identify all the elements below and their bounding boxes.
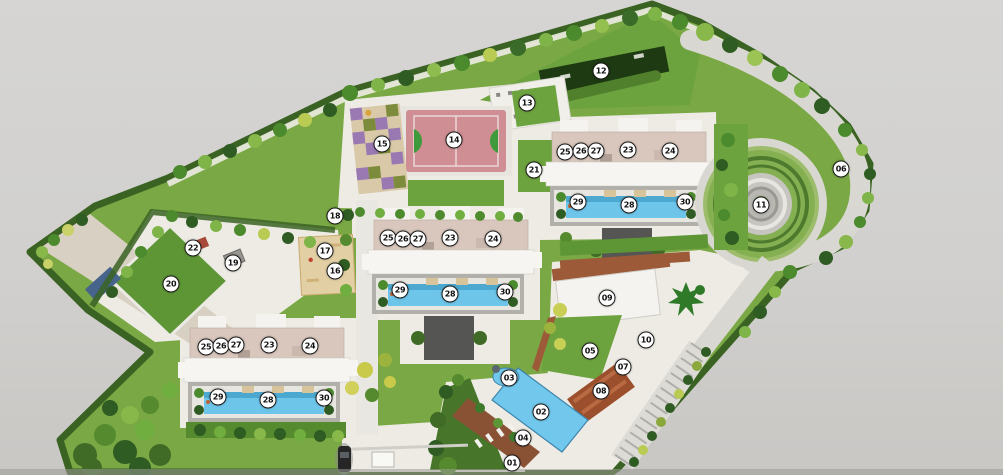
marker-05: 05: [582, 343, 599, 360]
site-plan-canvas: 0102030405060708091011121314151617181920…: [0, 0, 1003, 475]
marker-03: 03: [501, 370, 518, 387]
marker-27: 27: [410, 231, 427, 248]
marker-24: 24: [662, 143, 679, 160]
marker-15: 15: [374, 136, 391, 153]
marker-01: 01: [504, 455, 521, 472]
marker-04: 04: [515, 430, 532, 447]
marker-18: 18: [327, 208, 344, 225]
marker-06: 06: [833, 161, 850, 178]
marker-08: 08: [593, 383, 610, 400]
marker-22: 22: [185, 240, 202, 257]
marker-30: 30: [316, 390, 333, 407]
marker-24: 24: [302, 338, 319, 355]
marker-25: 25: [557, 144, 574, 161]
marker-29: 29: [392, 282, 409, 299]
marker-28: 28: [260, 392, 277, 409]
markers-layer: 0102030405060708091011121314151617181920…: [0, 0, 1003, 475]
marker-29: 29: [570, 194, 587, 211]
marker-11: 11: [753, 197, 770, 214]
marker-19: 19: [225, 255, 242, 272]
marker-27: 27: [588, 143, 605, 160]
marker-07: 07: [615, 359, 632, 376]
marker-28: 28: [621, 197, 638, 214]
marker-24: 24: [485, 231, 502, 248]
marker-10: 10: [638, 332, 655, 349]
marker-30: 30: [677, 194, 694, 211]
marker-21: 21: [526, 162, 543, 179]
marker-23: 23: [442, 230, 459, 247]
marker-23: 23: [620, 142, 637, 159]
marker-27: 27: [228, 337, 245, 354]
marker-13: 13: [519, 95, 536, 112]
marker-02: 02: [533, 404, 550, 421]
marker-30: 30: [497, 284, 514, 301]
marker-28: 28: [442, 286, 459, 303]
marker-17: 17: [317, 243, 334, 260]
marker-14: 14: [446, 132, 463, 149]
marker-29: 29: [210, 389, 227, 406]
marker-20: 20: [163, 276, 180, 293]
marker-16: 16: [327, 263, 344, 280]
marker-12: 12: [593, 63, 610, 80]
marker-23: 23: [261, 337, 278, 354]
marker-09: 09: [599, 290, 616, 307]
